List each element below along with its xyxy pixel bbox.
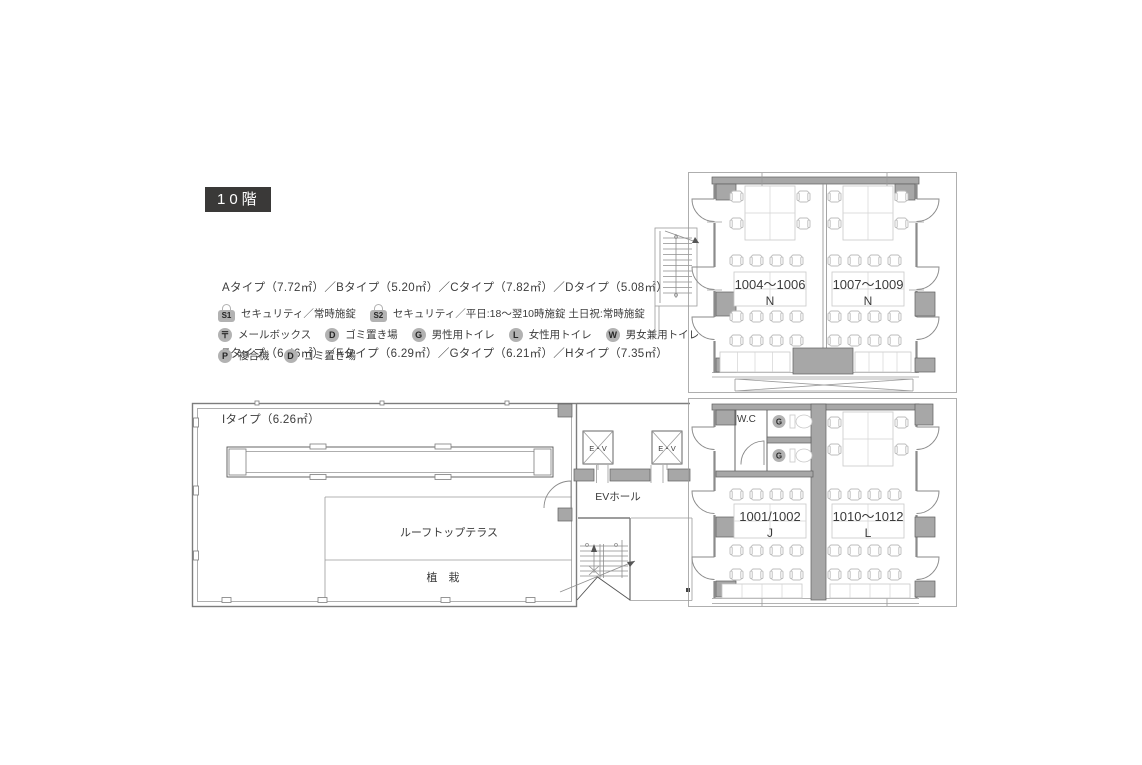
lower-office-block: W.C G G <box>689 399 957 607</box>
toilet-badge: G <box>776 418 782 427</box>
wc-label: W.C <box>737 414 756 425</box>
room-1010-1012: 1010～1012 L <box>828 412 910 598</box>
room-1004-1006: 1004～1006 N <box>730 186 810 346</box>
room-number: 1001/1002 <box>739 509 800 524</box>
room-type: L <box>865 526 872 540</box>
room-type: J <box>767 526 773 540</box>
ev-hall: E・V E・V EVホール <box>574 404 690 504</box>
room-number: 1010～1012 <box>833 509 904 524</box>
elevator-shaft-2: E・V <box>652 431 682 470</box>
room-number: 1007～1009 <box>833 277 904 292</box>
toilet-stall-2: G <box>773 449 813 462</box>
elevator-label: E・V <box>589 444 607 453</box>
balcony-strip <box>735 379 913 391</box>
room-type: N <box>766 294 775 308</box>
floorplan-drawing: ルーフトップテラス 植 栽 <box>0 0 1142 765</box>
terrace-wing: ルーフトップテラス 植 栽 <box>193 401 577 607</box>
room-type: N <box>864 294 873 308</box>
toilet-badge: G <box>776 452 782 461</box>
skylight-strip <box>227 444 553 480</box>
planting-label: 植 栽 <box>427 570 460 584</box>
room-number: 1004～1006 <box>735 277 806 292</box>
floorplan-page: 10階 Aタイプ（7.72㎡）／Bタイプ（5.20㎡）／Cタイプ（7.82㎡）／… <box>0 0 1142 765</box>
elevator-shaft-1: E・V <box>583 431 613 470</box>
upper-office-block: 1004～1006 N 1007～1009 N <box>689 173 957 393</box>
elevator-label: E・V <box>658 444 676 453</box>
stairwell <box>560 518 692 601</box>
toilet-stall-1: G <box>773 415 813 428</box>
ev-hall-label: EVホール <box>595 491 641 503</box>
perimeter-posts <box>194 401 536 603</box>
terrace-label: ルーフトップテラス <box>400 526 498 539</box>
room-1007-1009: 1007～1009 N <box>828 186 908 346</box>
